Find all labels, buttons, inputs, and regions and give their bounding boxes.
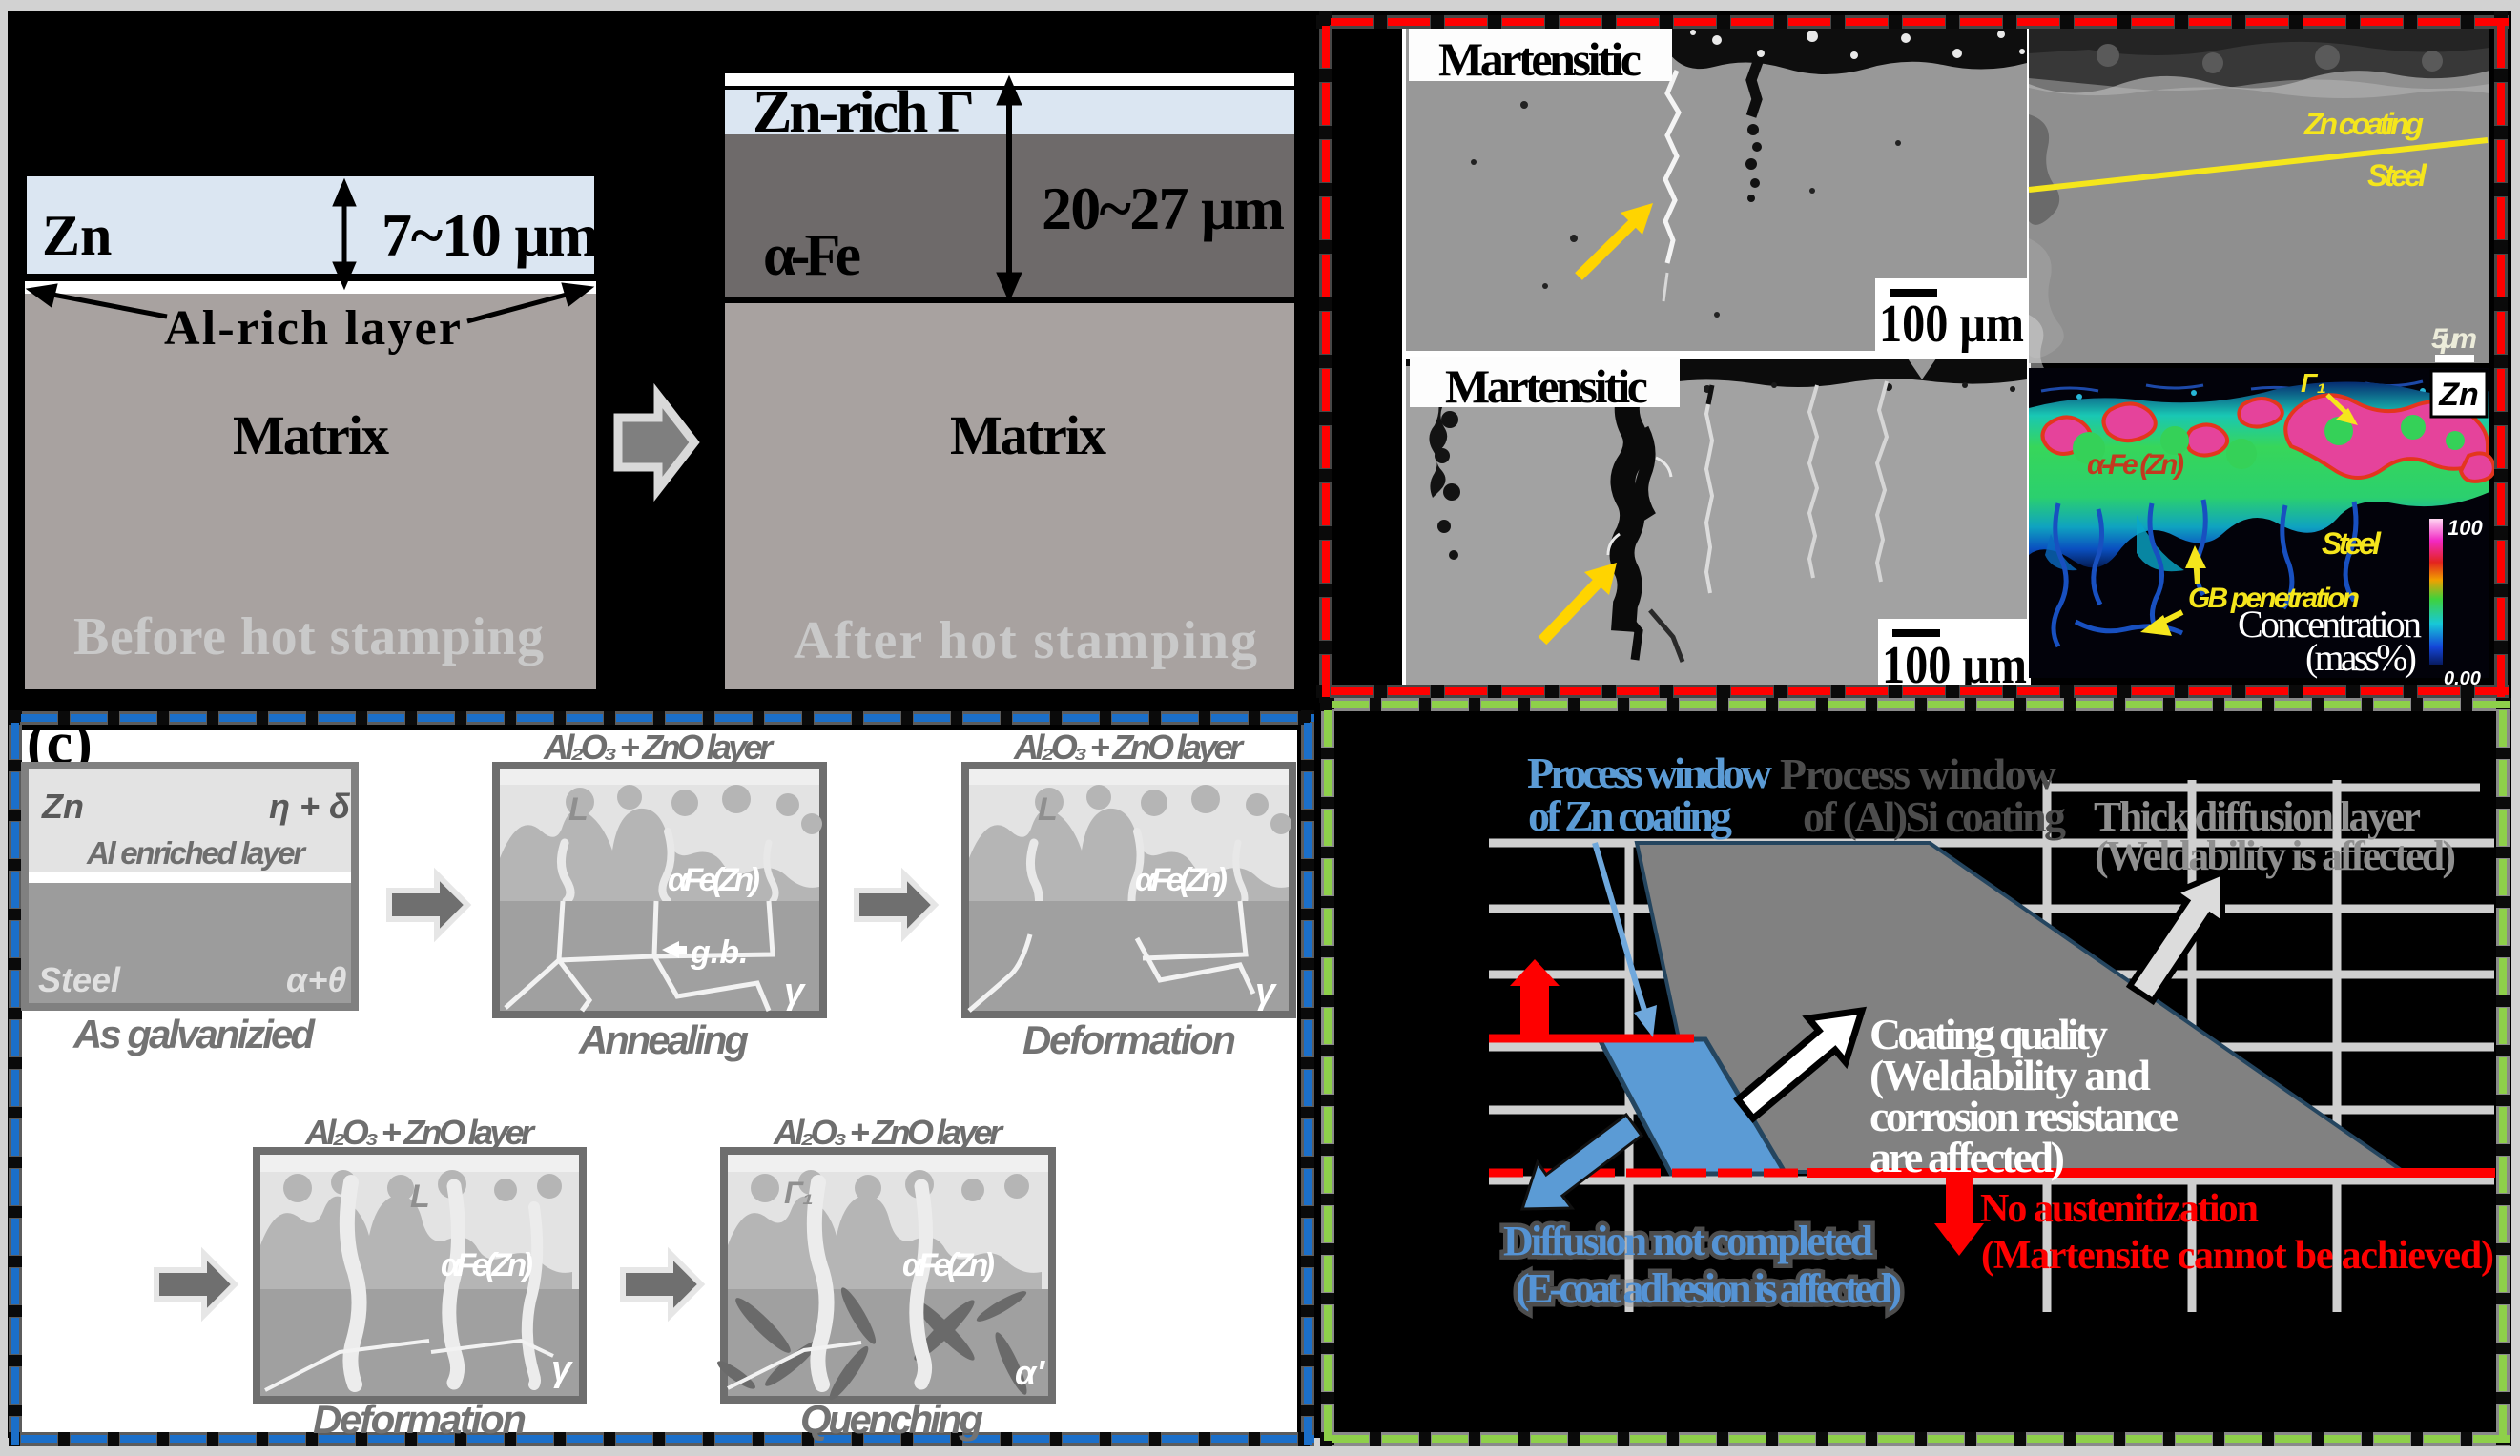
svg-text:α-Fe: α-Fe [763, 223, 861, 288]
svg-text:No austenitization: No austenitization [1980, 1187, 2259, 1231]
svg-text:Al₂O₃ + ZnO layer: Al₂O₃ + ZnO layer [304, 1113, 536, 1152]
svg-text:Γ₁: Γ₁ [784, 1176, 814, 1210]
svg-text:Process window: Process window [1780, 749, 2056, 798]
svg-text:γ: γ [1255, 972, 1277, 1012]
svg-text:100: 100 [2448, 516, 2483, 540]
svg-text:Zn: Zn [41, 787, 84, 826]
svg-text:γ: γ [784, 972, 806, 1012]
svg-text:αFe(Zn): αFe(Zn) [668, 862, 760, 898]
svg-text:α-Fe (Zn): α-Fe (Zn) [2087, 449, 2184, 481]
svg-text:Deformation: Deformation [313, 1397, 527, 1442]
svg-text:Al enriched layer: Al enriched layer [86, 835, 307, 871]
svg-text:α': α' [1015, 1353, 1045, 1392]
svg-text:η + δ: η + δ [269, 787, 351, 826]
svg-text:Al-rich layer: Al-rich layer [164, 301, 461, 356]
svg-text:Zn: Zn [2438, 377, 2479, 413]
svg-text:Γ₁: Γ₁ [2301, 368, 2326, 398]
svg-text:Steel: Steel [38, 960, 121, 999]
svg-text:(E-coat adhesion is affected): (E-coat adhesion is affected) [1516, 1265, 1902, 1312]
svg-text:Al₂O₃ + ZnO layer: Al₂O₃ + ZnO layer [543, 728, 775, 767]
svg-text:Process window: Process window [1527, 749, 1772, 797]
svg-text:(Weldability is affected): (Weldability is affected) [2095, 832, 2456, 879]
svg-text:L: L [1038, 791, 1058, 828]
svg-text:L: L [410, 1179, 430, 1215]
svg-text:Al₂O₃ + ZnO layer: Al₂O₃ + ZnO layer [773, 1113, 1004, 1152]
svg-text:Deformation: Deformation [1022, 1017, 1236, 1062]
svg-text:Annealing: Annealing [578, 1017, 749, 1062]
svg-text:(mass%): (mass%) [2305, 636, 2417, 679]
svg-text:Zn coating: Zn coating [2303, 107, 2424, 141]
svg-text:Matrix: Matrix [233, 404, 389, 466]
svg-text:(Martensite cannot be achieved: (Martensite cannot be achieved) [1981, 1234, 2494, 1278]
svg-text:α+θ: α+θ [286, 960, 346, 999]
svg-text:7~10 μm: 7~10 μm [382, 201, 599, 269]
svg-text:Al₂O₃ + ZnO layer: Al₂O₃ + ZnO layer [1013, 728, 1245, 767]
svg-text:L: L [568, 791, 589, 828]
svg-text:αFe(Zn): αFe(Zn) [441, 1247, 533, 1283]
svg-text:Martensitic: Martensitic [1438, 32, 1642, 86]
svg-text:of (Al)Si coating: of (Al)Si coating [1803, 792, 2066, 841]
svg-text:of Zn coating: of Zn coating [1528, 791, 1732, 840]
svg-text:αFe(Zn): αFe(Zn) [902, 1247, 995, 1283]
svg-text:Zn-rich Γ: Zn-rich Γ [753, 80, 975, 145]
svg-text:Quenching: Quenching [800, 1397, 983, 1443]
svg-text:αFe(Zn): αFe(Zn) [1135, 862, 1228, 898]
svg-text:After hot stamping: After hot stamping [794, 611, 1257, 670]
svg-text:20~27 μm: 20~27 μm [1042, 174, 1285, 242]
svg-text:As galvanizied: As galvanizied [72, 1012, 316, 1056]
svg-text:Matrix: Matrix [950, 404, 1106, 466]
svg-text:Before hot stamping: Before hot stamping [73, 607, 544, 666]
svg-text:Diffusion not completed: Diffusion not completed [1503, 1218, 1873, 1264]
svg-text:5μm: 5μm [2431, 323, 2477, 355]
svg-text:Steel: Steel [2322, 526, 2382, 561]
svg-text:Martensitic: Martensitic [1445, 359, 1648, 413]
svg-text:g.b.: g.b. [690, 934, 748, 971]
svg-text:Steel: Steel [2367, 158, 2427, 193]
svg-text:Zn: Zn [42, 204, 112, 267]
svg-text:are affected): are affected) [1869, 1133, 2065, 1181]
svg-text:100 μm: 100 μm [1879, 295, 2024, 354]
svg-text:γ: γ [551, 1349, 573, 1389]
